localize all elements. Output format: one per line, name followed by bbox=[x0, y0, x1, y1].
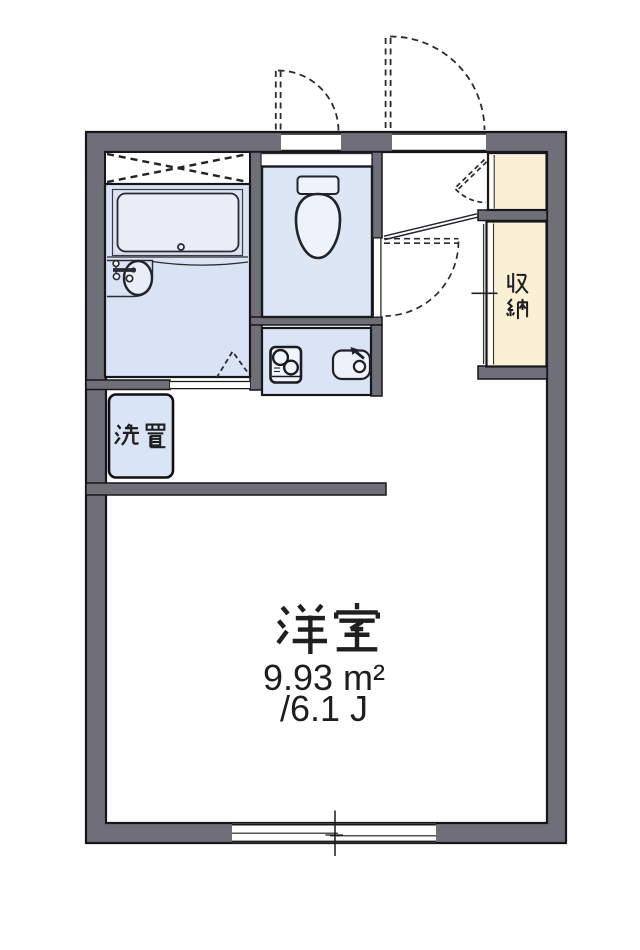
svg-text:/6.1 J: /6.1 J bbox=[280, 688, 368, 729]
